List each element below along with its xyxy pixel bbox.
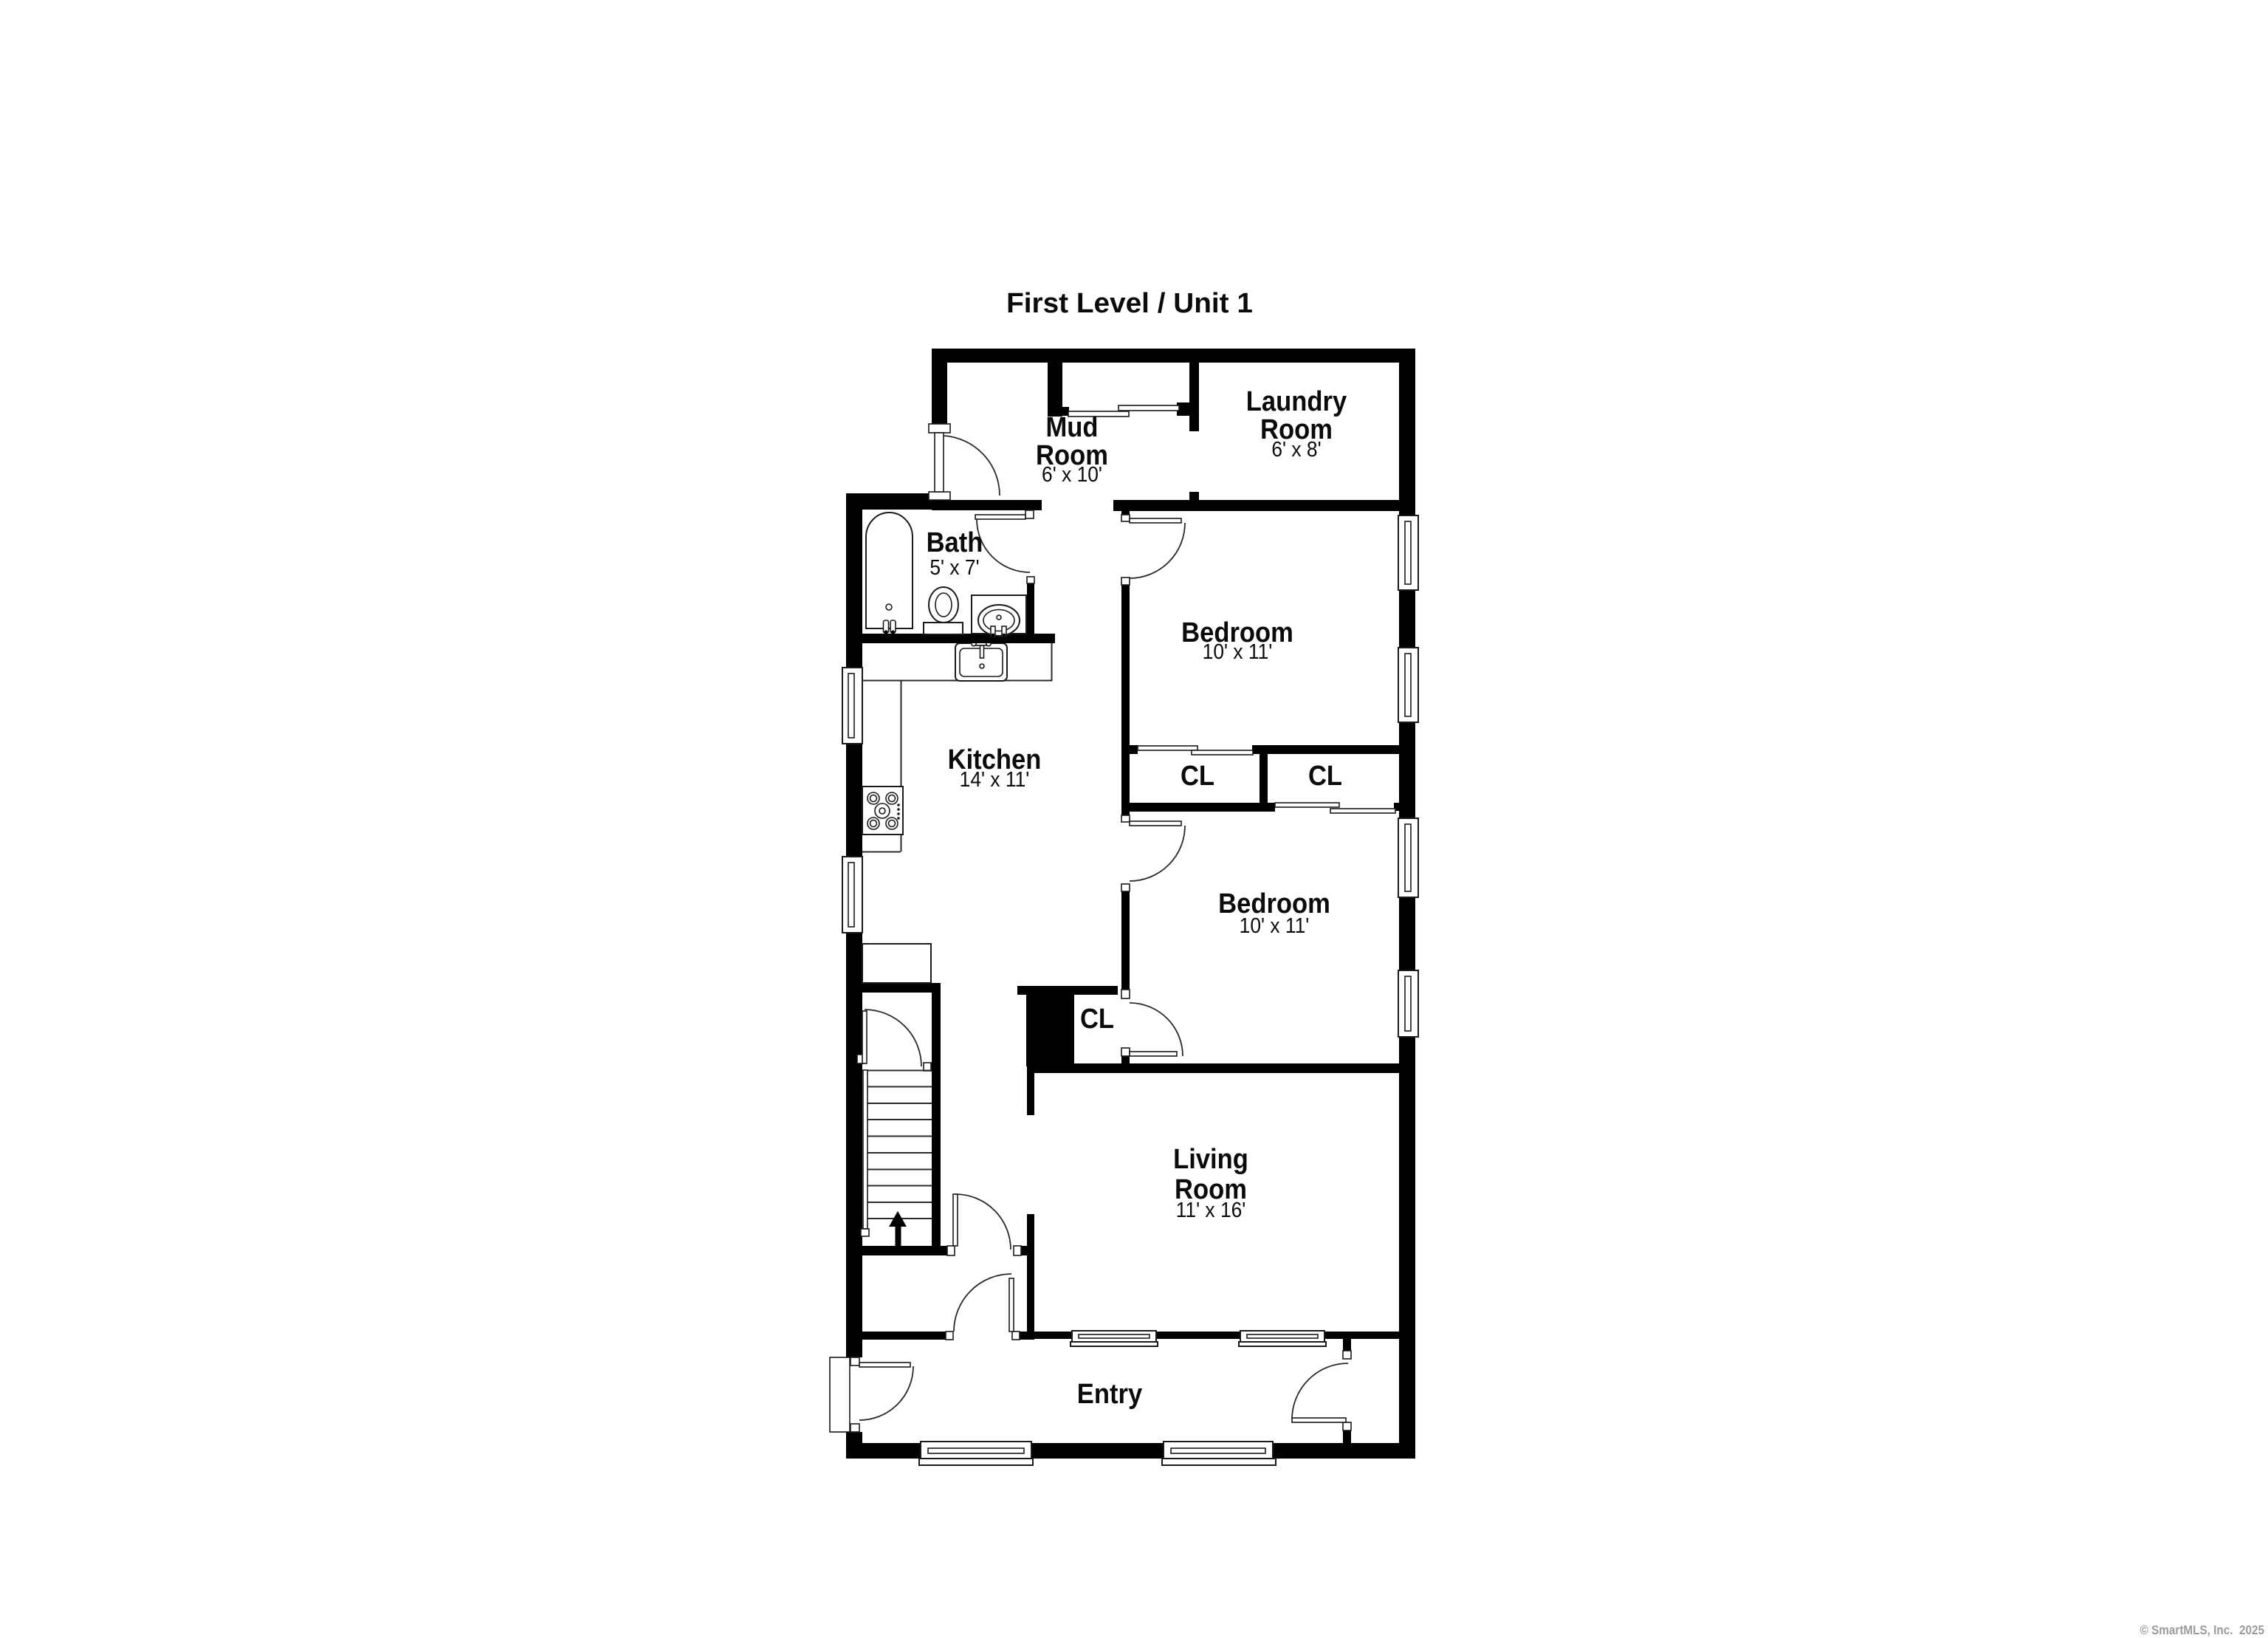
svg-text:Bath: Bath [927, 526, 983, 558]
svg-text:© SmartMLS, Inc. 2025: © SmartMLS, Inc. 2025 [2140, 1622, 2264, 1637]
svg-text:CL: CL [1181, 759, 1214, 791]
svg-text:11' x 16': 11' x 16' [1176, 1198, 1246, 1221]
svg-text:14' x 11': 14' x 11' [960, 767, 1030, 791]
svg-text:CL: CL [1080, 1002, 1114, 1034]
svg-text:10' x 11': 10' x 11' [1203, 640, 1273, 663]
svg-text:10' x 11': 10' x 11' [1240, 914, 1310, 937]
svg-text:6' x 10': 6' x 10' [1042, 462, 1102, 486]
svg-text:Mud: Mud [1045, 411, 1098, 442]
svg-text:5' x 7': 5' x 7' [929, 555, 979, 579]
svg-text:Living: Living [1173, 1142, 1248, 1174]
svg-text:First Level / Unit 1: First Level / Unit 1 [1006, 287, 1253, 319]
svg-text:CL: CL [1308, 759, 1342, 791]
svg-text:Entry: Entry [1077, 1377, 1143, 1409]
svg-text:6' x 8': 6' x 8' [1271, 437, 1321, 461]
svg-text:Laundry: Laundry [1246, 385, 1347, 417]
